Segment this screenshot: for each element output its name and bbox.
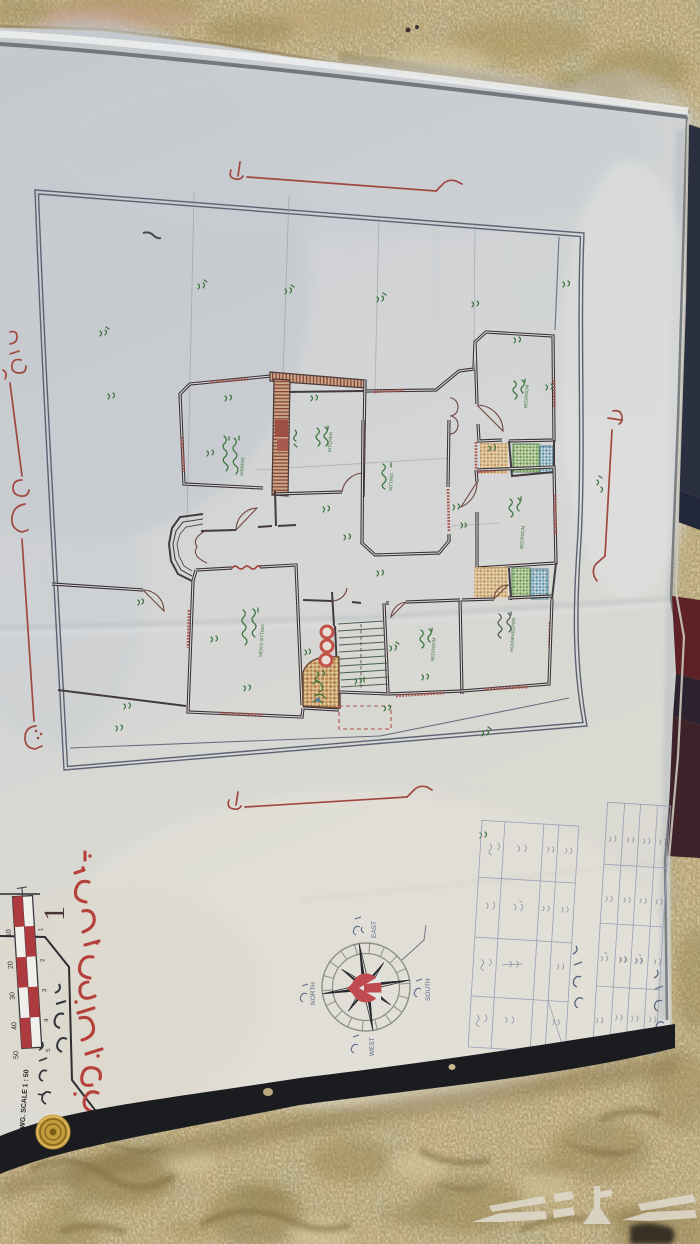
svg-text:EAST: EAST: [371, 921, 378, 938]
svg-text:WEST: WEST: [369, 1037, 376, 1056]
svg-text:30: 30: [9, 992, 16, 1000]
svg-text:SOUTH: SOUTH: [425, 978, 432, 1001]
svg-text:20: 20: [7, 961, 14, 969]
svg-text:NORTH: NORTH: [310, 982, 317, 1005]
svg-text:10: 10: [5, 929, 12, 937]
svg-text:50: 50: [13, 1051, 20, 1059]
svg-text:1: 1: [38, 906, 71, 921]
svg-text:40: 40: [11, 1022, 18, 1030]
